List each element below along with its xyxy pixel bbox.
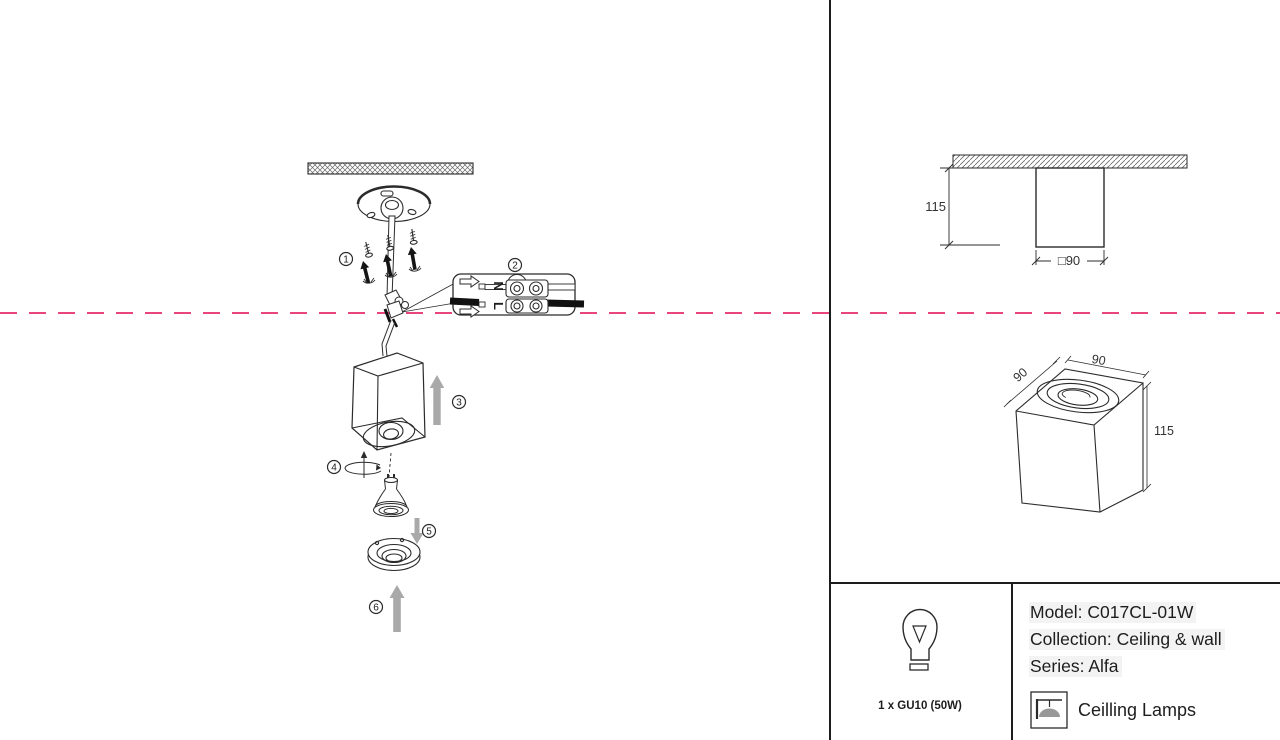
dimension-height: [940, 164, 1036, 249]
arrow-up-icon: [390, 585, 405, 632]
lamp-spec: 1 x GU10 (50W): [836, 700, 1004, 712]
model-value: Model: C017CL-01W: [1029, 602, 1196, 623]
iso-dim-side-label: 90: [1011, 365, 1031, 385]
wire-black: [450, 301, 479, 303]
lamp-wire: [382, 320, 395, 356]
iso-dim-top-label: 90: [1091, 352, 1107, 368]
screw: [362, 241, 372, 258]
step-6-badge: 6: [370, 601, 383, 614]
iso-dim-height-label: 115: [1154, 424, 1174, 438]
collection-line: Collection: Ceiling & wall: [1029, 628, 1225, 650]
callout-lines: [402, 283, 455, 312]
wire-connector: [382, 290, 409, 356]
terminal-label-l: L: [491, 302, 506, 310]
trim-ring: [368, 538, 420, 570]
step-4-badge: 4: [328, 461, 341, 474]
dimension-115-label: 115: [925, 199, 946, 214]
step-3-badge: 3: [453, 396, 466, 409]
wire-black: [546, 303, 584, 304]
arrow-down-icon: [411, 518, 424, 544]
series-line: Series: Alfa: [1029, 655, 1122, 677]
step-5-badge: 5: [423, 525, 436, 538]
iso-view: 90 90 115: [1004, 352, 1174, 512]
step-2-badge: 2: [509, 259, 522, 272]
step-4-number: 4: [331, 463, 337, 474]
lamp-housing: [352, 353, 425, 450]
alignment-dashed-line: [389, 453, 391, 477]
collection-value: Collection: Ceiling & wall: [1029, 629, 1225, 650]
instruction-sheet: 1: [0, 0, 1280, 740]
exploded-view: 1: [308, 163, 584, 632]
gu10-bulb: [374, 474, 409, 517]
ceiling-lamp-icon: [1031, 692, 1067, 728]
category-label: Ceilling Lamps: [1078, 700, 1196, 721]
step-2-number: 2: [512, 261, 518, 272]
step-3-number: 3: [456, 398, 462, 409]
series-value: Series: Alfa: [1029, 656, 1122, 677]
lamp-body-front: [1036, 168, 1104, 247]
step-1-badge: 1: [340, 253, 353, 266]
front-view: 115 □90: [925, 155, 1187, 268]
step-1-number: 1: [343, 255, 349, 266]
model-line: Model: C017CL-01W: [1029, 601, 1196, 623]
terminal-label-n: N: [491, 281, 506, 290]
ceiling-hatch: [953, 155, 1187, 168]
dimension-90-label: □90: [1058, 253, 1080, 268]
step-6-number: 6: [373, 603, 379, 614]
ceiling-hatch: [308, 163, 473, 174]
terminal-block: N L: [450, 274, 584, 317]
screw: [408, 229, 417, 245]
arrow-up-icon: [430, 375, 445, 425]
rotate-icon: [345, 451, 381, 478]
bulb-icon: [903, 610, 937, 671]
step-5-number: 5: [426, 527, 432, 538]
screw-arrow-up-icon: [407, 246, 420, 270]
